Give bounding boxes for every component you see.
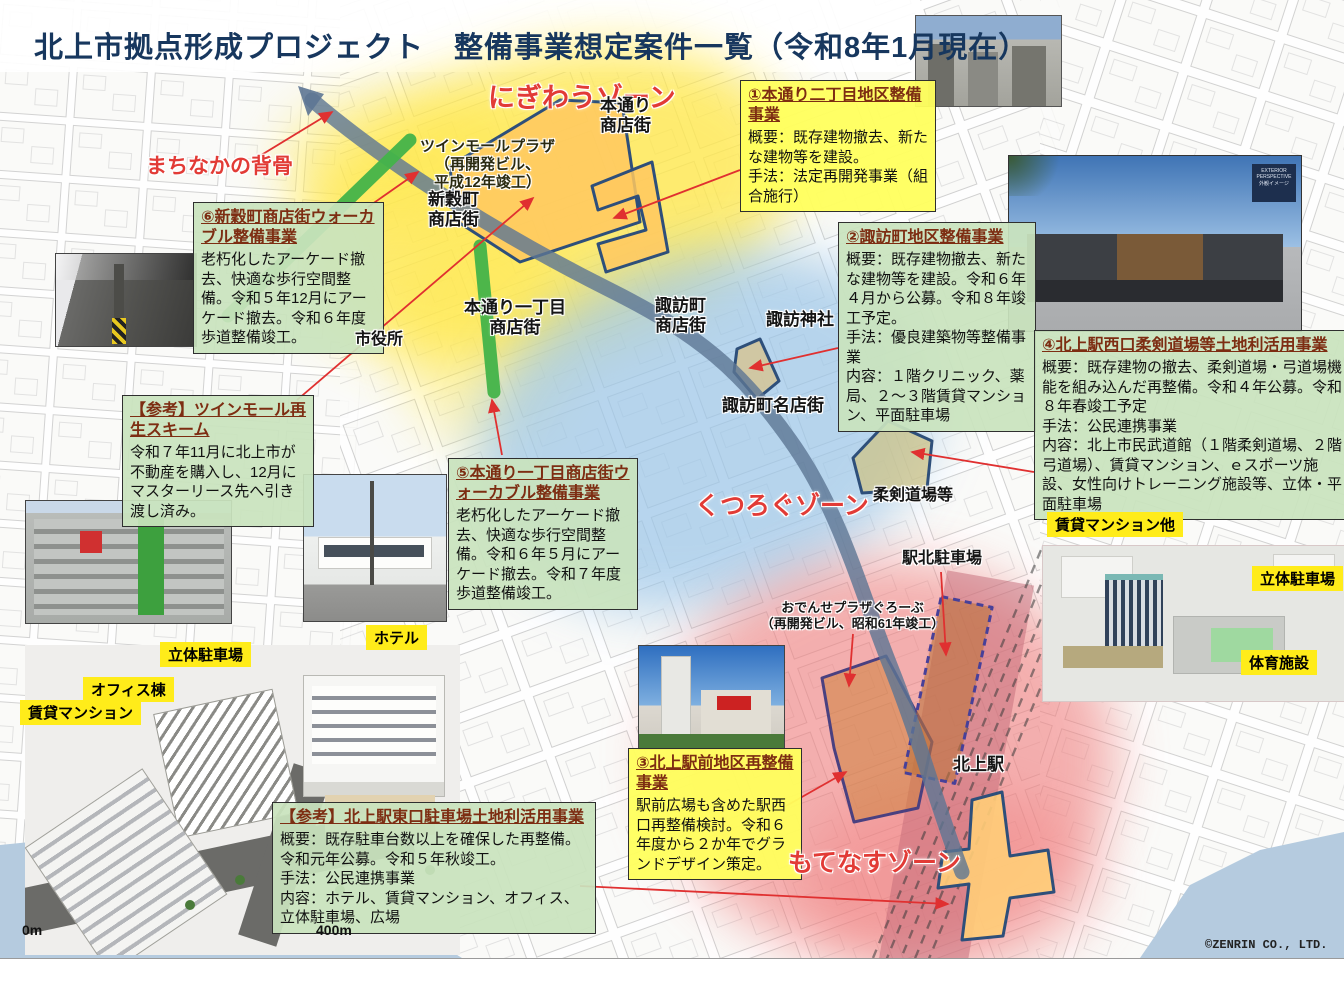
- callout-title: 【参考】北上駅東口駐車場土地利活用事業: [280, 808, 588, 828]
- hazard-stripe: [112, 318, 126, 344]
- tag-sports-facility: 体育施設: [1241, 650, 1317, 675]
- callout-body: 概要：既存建物撤去、新たな建物等を建設。令和６年４月から公募。令和８年竣工予定。…: [846, 250, 1028, 426]
- tag-parking-structure-left: 立体駐車場: [160, 642, 251, 667]
- rendered-building-base: [1027, 280, 1283, 302]
- hotel-block: [303, 675, 445, 797]
- red-signage: [717, 696, 751, 710]
- bottom-margin: [0, 958, 1344, 1008]
- project-map-page: EXTERIOR PERSPECTIVE 外観イメージ: [0, 0, 1344, 1008]
- callout-title: ②諏訪町地区整備事業: [846, 228, 1028, 248]
- label-judo-kendo-dojo: 柔剣道場等: [873, 486, 953, 505]
- exterior-chip: EXTERIOR PERSPECTIVE 外観イメージ: [1252, 164, 1296, 202]
- label-suwacho-shotengai: 諏訪町 商店街: [655, 296, 706, 337]
- utility-pole: [370, 481, 374, 585]
- label-suwacho-meitengai: 諏訪町名店街: [722, 396, 824, 416]
- copyright-notice: ©ZENRIN CO., LTD.: [1205, 938, 1327, 952]
- white-tower: [661, 656, 691, 744]
- shop-window-band: [324, 545, 424, 557]
- photo-shopping-street: [303, 474, 447, 622]
- photo-arcade-street: [55, 253, 197, 347]
- greenery: [639, 734, 784, 749]
- label-twinmall-plaza: ツインモールプラザ （再開発ビル、 平成12年竣工）: [400, 138, 575, 192]
- callout-body: 概要：既存建物の撤去、柔剣道場・弓道場機能を組み込んだ再整備。令和４年公募。令和…: [1042, 358, 1344, 514]
- callout-title: ①本通り二丁目地区整備事業: [748, 86, 928, 126]
- callout-4-west-dojo: ④北上駅西口柔剣道場等土地利活用事業 概要：既存建物の撤去、柔剣道場・弓道場機能…: [1034, 330, 1344, 520]
- callout-2-suwacho: ②諏訪町地区整備事業 概要：既存建物撤去、新たな建物等を建設。令和６年４月から公…: [838, 222, 1036, 432]
- callout-body: 概要：既存建物撤去、新たな建物等を建設。 手法：法定再開発事業（組合施行）: [748, 128, 928, 206]
- page-title: 北上市拠点形成プロジェクト 整備事業想定案件一覧（令和8年1月現在）: [34, 24, 1028, 66]
- callout-5-hondori-1chome: ⑤本通り一丁目商店街ウォーカブル整備事業 老朽化したアーケード撤去、快適な歩行空…: [448, 458, 638, 610]
- callout-title: ⑤本通り一丁目商店街ウォーカブル整備事業: [456, 464, 630, 504]
- label-hondori-shotengai: 本通り 商店街: [600, 96, 651, 137]
- scale-start-label: 0m: [22, 922, 42, 938]
- label-suwa-shrine: 諏訪神社: [766, 310, 834, 330]
- tag-rental-apartment-etc: 賃貸マンション他: [1047, 512, 1183, 537]
- tag-parking-structure-right: 立体駐車場: [1252, 566, 1343, 591]
- callout-1-hondori-2chome: ①本通り二丁目地区整備事業 概要：既存建物撤去、新たな建物等を建設。 手法：法定…: [740, 80, 936, 212]
- tag-office-building: オフィス棟: [83, 677, 174, 702]
- arcade-ceiling: [56, 254, 196, 280]
- label-hondori-1chome: 本通り一丁目 商店街: [455, 298, 575, 339]
- callout-body: 概要：既存駐車台数以上を確保した再整備。令和元年公募。令和５年秋竣工。 手法：公…: [280, 830, 588, 928]
- zone-label-kutsurogu: くつろぐゾーン: [695, 486, 869, 522]
- tag-rental-apartment: 賃貸マンション: [20, 700, 141, 725]
- label-kitakami-station: 北上駅: [953, 755, 1004, 775]
- red-sign: [80, 531, 102, 553]
- callout-ref-east-parking: 【参考】北上駅東口駐車場土地利活用事業 概要：既存駐車台数以上を確保した再整備。…: [272, 802, 596, 934]
- callout-ref-twinmall-scheme: 【参考】ツインモール再生スキーム 令和７年11月に北上市が不動産を購入し、12月…: [122, 395, 314, 527]
- callout-body: 老朽化したアーケード撤去、快適な歩行空間整備。令和６年５月にアーケード撤去。令和…: [456, 506, 630, 604]
- callout-title: ⑥新穀町商店街ウォーカブル整備事業: [201, 208, 376, 248]
- label-odense-plaza: おでんせプラザぐろーぶ （再開発ビル、昭和61年竣工）: [745, 600, 960, 631]
- callout-body: 老朽化したアーケード撤去、快適な歩行空間整備。令和５年12月にアーケード撤去。令…: [201, 250, 376, 348]
- label-city-hall: 市役所: [355, 330, 403, 349]
- hotel-windows: [312, 686, 436, 764]
- callout-title: 【参考】ツインモール再生スキーム: [130, 401, 306, 441]
- plaza-ground: [1063, 646, 1163, 668]
- photo-exterior-rendering: EXTERIOR PERSPECTIVE 外観イメージ: [1008, 155, 1302, 332]
- tree-foliage: [1009, 156, 1069, 196]
- photo-odense-plaza: [638, 645, 785, 750]
- label-north-parking: 駅北駐車場: [902, 549, 982, 568]
- callout-title: ④北上駅西口柔剣道場等土地利活用事業: [1042, 336, 1344, 356]
- callout-title: ③北上駅前地区再整備事業: [636, 754, 794, 794]
- label-shinkokucho-shotengai: 新穀町 商店街: [428, 190, 479, 231]
- callout-3-ekimae: ③北上駅前地区再整備事業 駅前広場も含めた駅西口再整備検討。令和６年度から２か年…: [628, 748, 802, 880]
- building-facade: [34, 519, 224, 615]
- zone-label-motenasu: もてなすゾーン: [788, 843, 961, 879]
- callout-body: 駅前広場も含めた駅西口再整備検討。令和６年度から２か年でグランドデザイン策定。: [636, 796, 794, 874]
- tag-hotel: ホテル: [366, 625, 427, 650]
- backbone-label: まちなかの背骨: [146, 150, 293, 180]
- scale-end-label: 400m: [316, 922, 352, 938]
- green-stripe: [138, 515, 164, 615]
- rendered-building-wood-section: [1117, 234, 1203, 280]
- callout-body: 令和７年11月に北上市が不動産を購入し、12月にマスターリース先へ引き渡し済み。: [130, 443, 306, 521]
